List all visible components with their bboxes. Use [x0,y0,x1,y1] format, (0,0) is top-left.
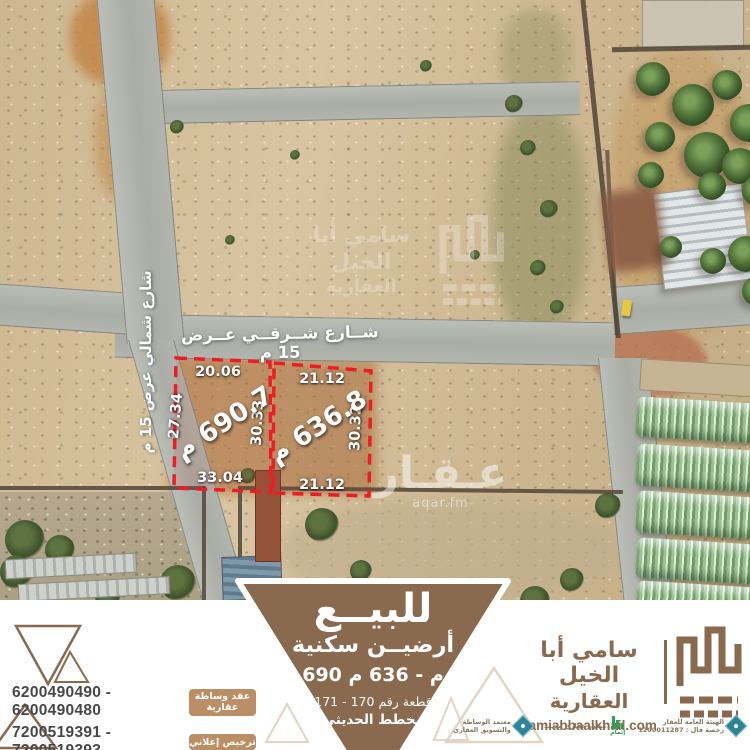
dim-right-top: 21.12 [292,371,352,387]
brand-divider [664,640,667,704]
dim-left-top: 20.06 [188,364,248,380]
badge-broker-line1: معتمد الوساطة [453,718,511,726]
etmam-caption: إتمام [610,729,625,736]
street-label-east: شــارع شــرقــي عــرض 15 م [180,322,381,363]
flyer-root: سامي أبا الخيل العقارية عـقـار aqar.fm 2… [0,0,750,750]
triangle-decoration-left [8,622,108,692]
street-label-north: شارع شمالي عرض 15 م [137,254,155,470]
etmam-bars-icon: إتمام [610,716,625,736]
kufic-logo [676,626,742,718]
banner-subtitle: أرضيــن سكنية [252,632,494,658]
brand-name-line2: العقارية [520,689,658,713]
badge-broker: معتمد الوساطة والتسويق العقاري [453,718,531,735]
badge-authority: الهيئة العامة للعقار رخصة فال : 12000112… [638,718,744,735]
contact-label-badge: ترخيص إعلاني [189,734,256,750]
plot-boundaries [0,0,750,600]
aerial-photo: سامي أبا الخيل العقارية عـقـار aqar.fm 2… [0,0,750,600]
phone-numbers: 7200519391 - 7200519393 [12,724,183,750]
banner-areas: 690 م - 636 م [252,664,494,686]
dim-right-bottom: 21.12 [292,477,352,493]
contact-label-badge: عقد وساطة عقارية [189,689,256,716]
broker-seal-icon [512,715,535,738]
banner-title: للبيــع [252,588,494,630]
dim-left-bottom: 33.04 [190,470,250,486]
badge-developer-text: مطور عقاري معتمد [544,722,606,730]
badge-authority-line2: رخصة فال : 1200011287 [638,726,724,734]
phone-numbers: 6200490490 - 6200490480 [12,684,183,720]
brand-name-line1: سامي أبا الخيل [520,638,658,689]
contact-row: 6200490490 - 6200490480 عقد وساطة عقارية [12,684,256,720]
badge-broker-line2: والتسويق العقاري [453,726,511,734]
certification-badges: الهيئة العامة للعقار رخصة فال : 12000112… [453,716,744,736]
sale-banner: للبيــع أرضيــن سكنية 690 م - 636 م قطعة… [252,588,494,728]
badge-developer: إتمام مطور عقاري معتمد [544,716,625,736]
contact-block: 6200490490 - 6200490480 عقد وساطة عقارية… [12,684,256,750]
contact-row: 7200519391 - 7200519393 ترخيص إعلاني [12,724,256,750]
authority-seal-icon [725,715,748,738]
banner-plot-numbers: قطعة رقم 170 - 171 [252,694,494,709]
badge-authority-line1: الهيئة العامة للعقار [638,718,724,726]
